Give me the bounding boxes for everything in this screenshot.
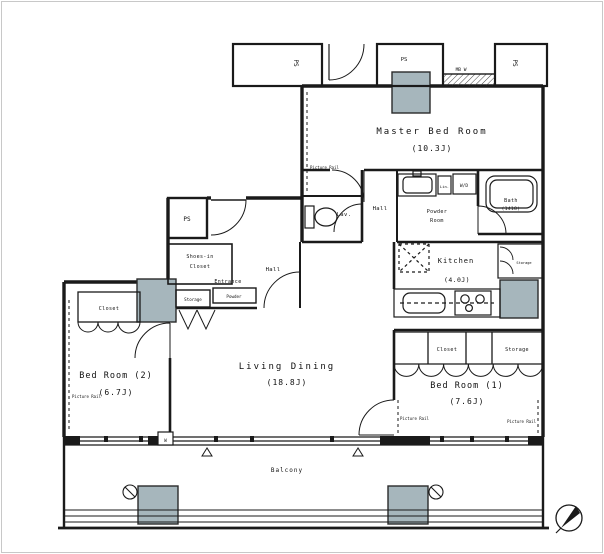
floor-plan-page: Master Bed Room (10.3J) Living Dining (1… (0, 0, 604, 554)
canvas-frame (1, 1, 603, 553)
